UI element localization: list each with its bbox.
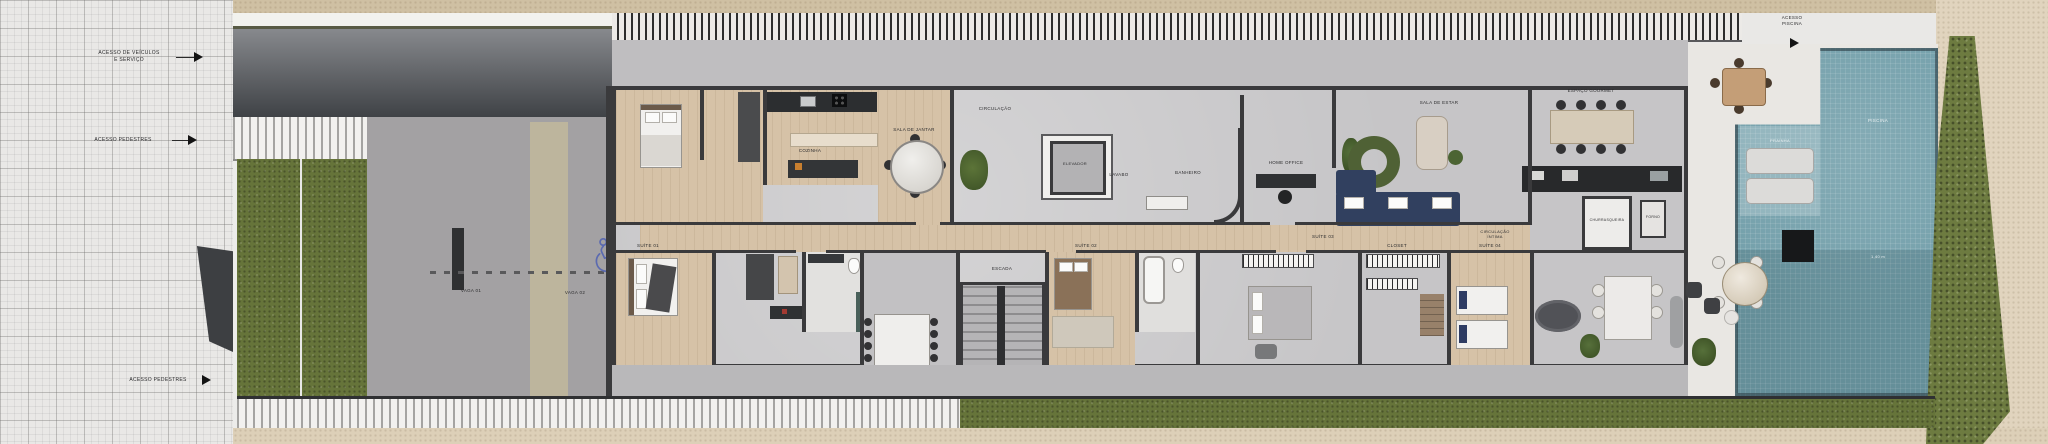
wall [1447,252,1451,365]
wardrobe [738,92,760,162]
pool-ledge-label: PRAINHA [1750,138,1810,143]
curved-wall [1214,128,1242,224]
bath-text: BANHEIRO [1175,170,1201,175]
pedestrian-access-label-top: ACESSO PEDESTRES [66,137,180,144]
leader-line [176,57,194,58]
pillow-navy [1459,325,1467,343]
grill-text: CHURRASQUEIRA [1590,218,1625,222]
wall [1358,252,1362,365]
oven-label: FORNO [1640,215,1666,220]
suite1-text: SUÍTE 01 [637,243,659,248]
hall-label: CIRCULAÇÃO [950,106,1040,112]
wall [763,90,767,185]
chaise-right [1670,296,1683,348]
pool-access-arrow-icon [1790,38,1804,48]
family-chair [864,330,872,338]
suite4-label: SUÍTE 04 [1462,243,1518,249]
wall [956,252,960,365]
elevator-cab [1050,141,1106,195]
wall [712,252,716,365]
pillow [645,112,660,123]
wall [1295,222,1530,225]
living-text: SALA DE ESTAR [1420,100,1459,105]
garden-divider [300,159,302,425]
headboard [641,105,681,110]
pillow-navy [1459,291,1467,309]
desk-accent-red [782,309,787,314]
wall [826,250,1046,253]
pool-ledge-text: PRAINHA [1770,138,1790,143]
pillow [1252,292,1263,311]
small-plant [1448,150,1463,165]
bath2-counter [808,254,844,263]
vehicle-access-label: ACESSO DE VEÍCULOS E SERVIÇO [70,50,188,63]
roof-apron [612,40,1688,90]
terrace-chair [1712,256,1725,269]
intimate-hall-label: CIRCULAÇÃO ÍNTIMA [1462,229,1528,239]
closet-text: CLOSET [1387,243,1407,248]
gourmet-text: ESPAÇO GOURMET [1568,88,1615,93]
wall [616,222,916,225]
pedestrian-access-label-bottom: ACESSO PEDESTRES [116,377,200,384]
toilet [1172,258,1184,273]
table-chair [1576,144,1586,154]
vehicle-ramp [233,29,612,117]
counter-appliance [1562,170,1578,181]
gourmet-label: ESPAÇO GOURMET [1546,88,1636,94]
counter-sink [1650,171,1668,181]
wall [802,252,806,332]
powder-text: LAVABO [1109,172,1128,177]
table-chair [1556,100,1566,110]
leader-line [172,140,188,141]
table-chair [1576,100,1586,110]
pedestrian-access-bottom-text: ACESSO PEDESTRES [129,377,186,383]
gourmet-counter [1522,166,1682,192]
sofa-cushion [1388,197,1408,209]
pool-lounger [1746,178,1814,204]
pool-label: PISCINA [1848,118,1908,124]
suite1-label: SUÍTE 01 [620,243,676,249]
south-louver-fence [237,399,960,428]
wall [860,252,864,365]
table-chair [1596,144,1606,154]
pool-depth-label: 1,40 m [1848,254,1908,259]
wall [1530,252,1534,365]
blanket [641,135,681,166]
pool-text: PISCINA [1868,118,1888,123]
table-chair [1616,100,1626,110]
terrace-chair [1734,58,1744,68]
parking-spot-1-label: VAGA 01 [446,288,496,294]
ground-strip-top [233,0,2048,13]
office-chair [1278,190,1292,204]
bathtub [1143,256,1165,304]
pool-depth-text: 1,40 m [1871,254,1885,259]
pedestrian-access-arrow-top-icon [188,135,202,145]
living-label: SALA DE ESTAR [1404,100,1474,106]
round-dining-table [890,140,944,194]
table-chair [1596,100,1606,110]
kitchen-sink [800,96,816,107]
counter-appliance [1532,171,1544,180]
wall [1135,252,1139,332]
pouf-white [1724,310,1739,325]
pillow [1252,315,1263,334]
cooktop [832,94,847,107]
family-chair [930,354,938,362]
parking-dashed-line [430,271,606,274]
terrace-plant [1692,338,1716,366]
closet-rack [1366,254,1440,268]
garden-strip-left [237,159,367,425]
kitchen-text: COZINHA [799,148,821,153]
navy-sofa [1336,192,1460,226]
vehicle-access-arrow-icon [194,52,208,62]
terrace-wood-table [1722,68,1766,106]
stairs-label: ESCADA [972,266,1032,272]
headboard [629,259,634,315]
closet-shelves [1420,294,1444,336]
ground-strip-bottom [233,428,2048,444]
dining-text: SALA DE JANTAR [893,127,934,132]
closet-rack [1366,278,1418,290]
pillow [1074,262,1088,272]
bath-label: BANHEIRO [1162,170,1214,176]
south-grass-strip [960,399,1935,428]
kitchen-bar [790,133,878,147]
lounge-chair [1416,116,1448,170]
closet-label: CLOSET [1372,243,1422,249]
twin-bed [1456,320,1508,349]
office-desk [1256,174,1316,188]
bed [1248,286,1312,340]
office-text: HOME OFFICE [1269,160,1304,165]
kitchen-label: COZINHA [780,148,840,154]
ramp-roof-edge [233,13,612,29]
pillow [636,264,647,284]
parking-spot-1-text: VAGA 01 [461,288,481,293]
pool-access-label: ACESSO PISCINA [1768,15,1816,27]
elevator-text: ELEVADOR [1063,161,1087,166]
wall [700,90,704,160]
bedroom-rug [1052,316,1114,348]
pillow [1059,262,1073,272]
grill-box [1582,196,1632,250]
top-louver-fence [610,13,1742,42]
toilet [848,258,860,274]
terrace-chair [1710,78,1720,88]
long-dining-table [1550,110,1634,144]
pool-access-line2: PISCINA [1768,21,1816,27]
kitchen-counter [765,92,877,112]
wall [950,90,954,225]
closet-rack [1242,254,1314,268]
family-table [874,314,930,366]
pool-lounger [1746,148,1814,174]
breakfast-table [1604,276,1652,340]
wall [616,250,796,253]
intimate-hall-line2: ÍNTIMA [1462,234,1528,239]
island-appliance-orange [795,163,802,170]
stair-rail [997,286,1005,372]
family-chair [930,342,938,350]
potted-plant [960,150,988,190]
bed [628,258,678,316]
suite2-label: SUÍTE 02 [1058,243,1114,249]
wall [1306,250,1688,253]
table-chair [1616,144,1626,154]
parking-spot-2-text: VAGA 02 [565,290,585,295]
floor-plan-render: ACESSO DE VEÍCULOS E SERVIÇO ACESSO PEDE… [0,0,2048,444]
daybed [778,256,798,294]
suite2-text: SUÍTE 02 [1075,243,1097,248]
dining-label: SALA DE JANTAR [878,127,950,133]
family-chair [930,330,938,338]
elevator-label: ELEVADOR [1050,161,1100,166]
wardrobe [746,254,774,300]
sofa-cushion [1344,197,1364,209]
office-label: HOME OFFICE [1248,160,1324,166]
hall-text: CIRCULAÇÃO [979,106,1012,111]
wall [1196,252,1200,365]
suite3-text: SUÍTE 03 [1312,234,1334,239]
vehicle-access-line2: E SERVIÇO [70,57,188,64]
family-chair [864,354,872,362]
outdoor-tv-panel [1782,230,1814,262]
wall [1528,86,1532,225]
powder-room-label: LAVABO [1096,172,1142,178]
pillow [662,112,677,123]
wall [1045,252,1049,365]
lounge-plant [1580,334,1600,358]
grill-label: CHURRASQUEIRA [1582,218,1632,223]
suite4-text: SUÍTE 04 [1479,243,1501,248]
family-chair [864,318,872,326]
terrace-round-table [1722,262,1768,306]
wall [1240,95,1244,225]
lounge-rug-round [1535,300,1581,332]
bed [640,104,682,168]
wall [1076,250,1276,253]
bed [1054,258,1092,310]
parking-spot-2-label: VAGA 02 [550,290,600,296]
family-chair [864,342,872,350]
wall [940,222,1270,225]
parking-paver-band [530,122,568,428]
pouf [1686,282,1702,298]
throw-blanket [646,263,677,312]
wall [1332,90,1336,168]
armchair [1255,344,1277,359]
sofa-cushion [1432,197,1452,209]
hall-bench [1146,196,1188,210]
oven-text: FORNO [1646,215,1660,219]
twin-bed [1456,286,1508,315]
pouf [1704,298,1720,314]
suite3-label: SUÍTE 03 [1298,234,1348,240]
family-chair [930,318,938,326]
pedestrian-access-top-text: ACESSO PEDESTRES [94,137,151,143]
parking-pillar [452,228,464,290]
pedestrian-access-arrow-bottom-icon [202,375,216,385]
table-chair [1556,144,1566,154]
pool-deep-shading [1737,250,1936,394]
stairs-text: ESCADA [992,266,1012,271]
walkway-south [612,365,1688,398]
